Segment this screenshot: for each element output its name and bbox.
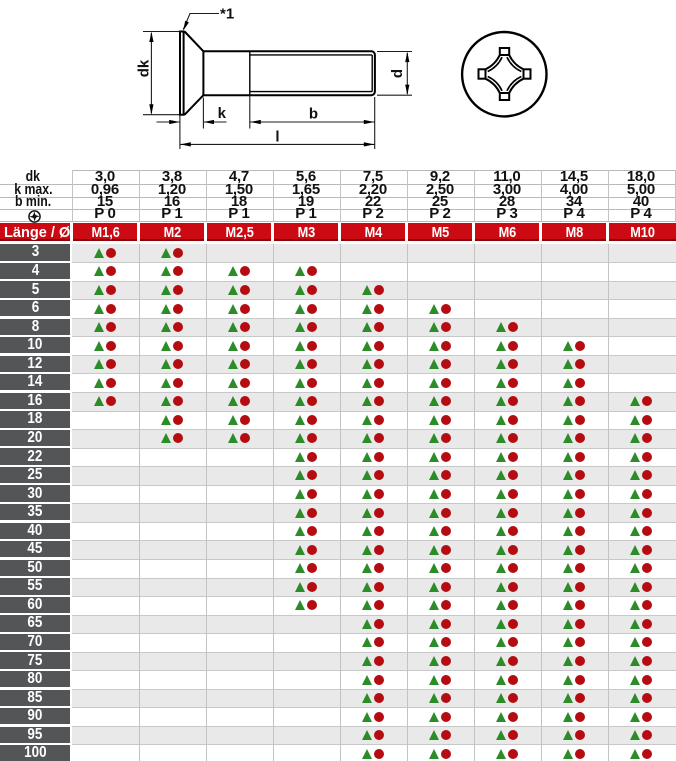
svg-text:b: b [309,106,318,123]
svg-text:*1: *1 [220,6,234,23]
svg-text:d: d [389,69,406,78]
svg-text:k: k [218,105,227,122]
svg-text:l: l [275,129,279,146]
svg-text:dk: dk [136,59,153,77]
